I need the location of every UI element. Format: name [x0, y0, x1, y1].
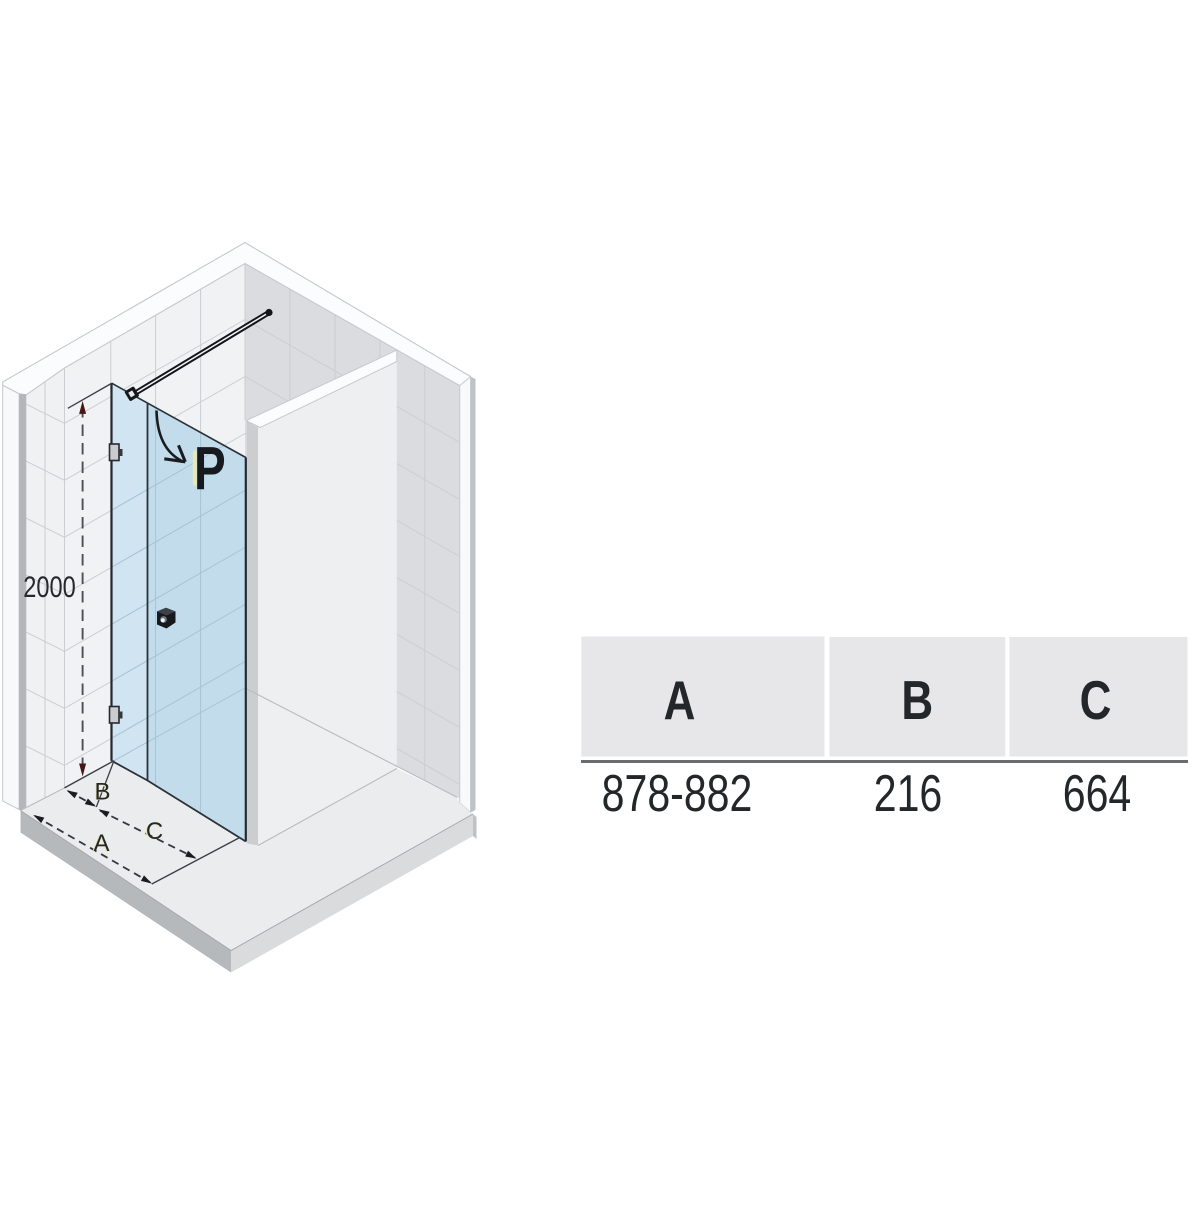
svg-text:C: C	[146, 818, 163, 845]
svg-text:A: A	[664, 669, 696, 731]
svg-text:P: P	[194, 434, 226, 503]
svg-text:B: B	[901, 669, 933, 731]
svg-text:216: 216	[874, 764, 943, 822]
svg-text:C: C	[1080, 669, 1112, 731]
svg-text:664: 664	[1063, 764, 1132, 822]
svg-text:2000: 2000	[23, 570, 75, 603]
svg-text:B: B	[94, 779, 110, 806]
svg-text:A: A	[93, 830, 109, 857]
svg-text:878-882: 878-882	[602, 764, 753, 822]
